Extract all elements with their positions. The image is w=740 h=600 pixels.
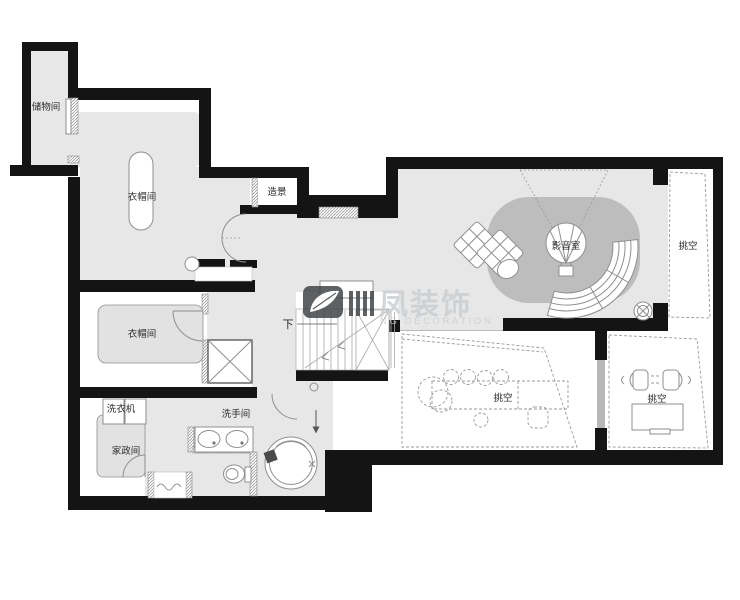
toilet [224, 465, 252, 483]
label-void-right: 挑空 [678, 240, 697, 252]
bottom-bay-window [154, 472, 186, 498]
column [185, 257, 199, 271]
cloak-upper-closet [129, 152, 153, 230]
label-housekeeping: 家政间 [112, 445, 141, 457]
label-landscape: 造景 [267, 186, 286, 198]
wall-slot [195, 267, 252, 281]
label-cloak-upper: 衣帽间 [128, 191, 157, 203]
label-void-bottom-right: 挑空 [647, 393, 666, 405]
vanity [195, 427, 253, 452]
floor-plan: 凤装饰 NG DECORATION 储物间 衣帽间 造景 影音室 挑空 下 衣帽… [0, 0, 740, 600]
floor-plan-drawing: 凤装饰 NG DECORATION 储物间 衣帽间 造景 影音室 挑空 下 衣帽… [0, 0, 740, 600]
label-void-bottom-left: 挑空 [493, 392, 512, 404]
label-washer: 洗衣机 [107, 403, 136, 415]
speaker [634, 302, 652, 320]
storage-pocket-door [66, 99, 71, 134]
label-washroom: 洗手间 [222, 408, 251, 420]
label-media-room: 影音室 [552, 240, 581, 252]
void-bottom-right [609, 335, 708, 448]
void-divider-glass [597, 360, 605, 428]
label-cloak-lower: 衣帽间 [128, 328, 157, 340]
label-storage: 储物间 [32, 101, 61, 113]
void-bottom-left [402, 334, 577, 447]
label-stairs-down: 下 [283, 319, 294, 331]
watermark-tagline: NG DECORATION [380, 316, 493, 327]
shaft-x-box [208, 340, 252, 383]
